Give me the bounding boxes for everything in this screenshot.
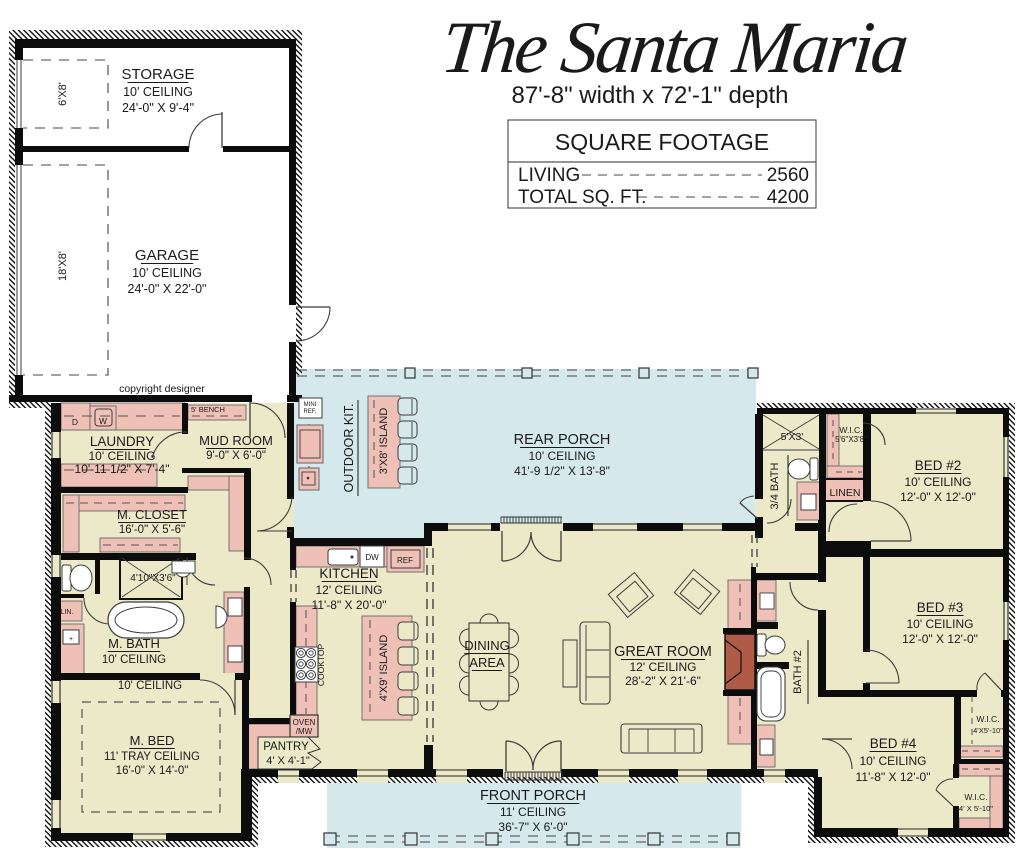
svg-text:LAUNDRY: LAUNDRY [90,434,154,449]
svg-text:DINING: DINING [464,638,510,653]
svg-text:W: W [99,416,107,426]
svg-text:10' CEILING: 10' CEILING [905,475,972,489]
svg-text:2560: 2560 [767,165,809,186]
svg-text:11'-8" X 12'-0": 11'-8" X 12'-0" [856,770,931,784]
svg-text:5'6"X3'8": 5'6"X3'8" [835,435,867,444]
svg-text:24'-0" X 9'-4": 24'-0" X 9'-4" [122,101,194,115]
svg-text:COOKTOP: COOKTOP [316,643,326,686]
svg-text:41'-9 1/2" X 13'-8": 41'-9 1/2" X 13'-8" [514,464,610,478]
svg-text:LINEN: LINEN [830,487,861,499]
svg-text:10' CEILING: 10' CEILING [118,680,182,692]
svg-text:10' CEILING: 10' CEILING [907,617,974,631]
svg-text:REF: REF [397,556,413,565]
svg-text:BED #2: BED #2 [915,458,962,473]
svg-text:11' TRAY CEILING: 11' TRAY CEILING [104,751,200,763]
svg-text:10' CEILING: 10' CEILING [860,754,927,768]
svg-text:GREAT ROOM: GREAT ROOM [614,644,712,660]
svg-text:10' CEILING: 10' CEILING [102,654,166,666]
svg-text:5' BENCH: 5' BENCH [191,405,225,414]
svg-text:GARAGE: GARAGE [135,247,199,264]
svg-text:10' CEILING: 10' CEILING [123,85,193,99]
svg-text:AREA: AREA [469,655,505,670]
svg-text:copyright designer: copyright designer [119,383,205,395]
svg-text:W.I.C.: W.I.C. [964,792,987,802]
svg-text:3'X8' ISLAND: 3'X8' ISLAND [378,408,390,475]
svg-text:24'-0" X 22'-0": 24'-0" X 22'-0" [128,282,207,296]
svg-text:KITCHEN: KITCHEN [319,566,378,581]
svg-text:+: + [69,636,73,643]
svg-text:LIN.: LIN. [61,609,74,616]
svg-text:10' CEILING: 10' CEILING [132,266,202,280]
svg-text:28'-2" X 21'-6": 28'-2" X 21'-6" [625,674,701,688]
svg-text:LIVING: LIVING [518,165,580,186]
svg-text:REAR PORCH: REAR PORCH [514,432,611,448]
svg-text:/MW: /MW [296,727,313,736]
svg-text:BED #3: BED #3 [917,600,964,615]
svg-text:W.I.C.: W.I.C. [839,425,862,435]
svg-text:4'X9' ISLAND: 4'X9' ISLAND [378,635,390,702]
svg-text:OUTDOOR KIT.: OUTDOOR KIT. [342,404,356,493]
svg-text:4'X5'-10": 4'X5'-10" [973,726,1003,735]
svg-text:16'-0" X 5'-6": 16'-0" X 5'-6" [119,524,185,536]
svg-text:10' CEILING: 10' CEILING [529,449,596,463]
svg-text:The Santa Maria: The Santa Maria [438,7,911,89]
svg-text:D: D [72,417,78,427]
svg-text:BED #4: BED #4 [870,736,917,751]
svg-text:M. CLOSET: M. CLOSET [117,507,187,522]
svg-text:MINI: MINI [304,402,317,408]
svg-text:18'X8': 18'X8' [57,251,69,281]
svg-text:12'-0" X 12'-0": 12'-0" X 12'-0" [902,632,978,646]
svg-text:4'10"X3'6": 4'10"X3'6" [130,573,176,584]
svg-text:6'X8': 6'X8' [57,82,69,106]
svg-text:12' CEILING: 12' CEILING [630,660,697,674]
svg-text:11' CEILING: 11' CEILING [500,805,566,819]
svg-text:STORAGE: STORAGE [121,66,194,83]
svg-text:16'-0" X 14'-0": 16'-0" X 14'-0" [116,765,189,777]
svg-text:11'-8" X 20'-0": 11'-8" X 20'-0" [312,598,387,612]
svg-text:4200: 4200 [767,187,809,208]
svg-text:W.I.C.: W.I.C. [976,714,999,724]
svg-text:MUD ROOM: MUD ROOM [199,433,273,448]
svg-text:REF.: REF. [303,409,316,415]
svg-text:TOTAL SQ. FT.: TOTAL SQ. FT. [518,187,646,208]
svg-text:PANTRY: PANTRY [263,741,309,753]
svg-text:12'-0" X 12'-0": 12'-0" X 12'-0" [900,490,976,504]
svg-text:10' CEILING: 10' CEILING [89,449,156,463]
svg-text:4' X 4'-1": 4' X 4'-1" [266,755,310,767]
svg-text:SQUARE FOOTAGE: SQUARE FOOTAGE [555,129,769,155]
svg-text:M. BED: M. BED [130,733,175,748]
svg-text:10'-11 1/2" X 7'-4": 10'-11 1/2" X 7'-4" [75,462,170,476]
svg-text:BATH #2: BATH #2 [792,650,804,694]
svg-text:OVEN: OVEN [293,718,316,727]
svg-text:36'-7" X 6'-0": 36'-7" X 6'-0" [498,820,567,834]
svg-text:FRONT PORCH: FRONT PORCH [480,788,586,804]
svg-text:3/4 BATH: 3/4 BATH [769,463,781,510]
svg-text:12' CEILING: 12' CEILING [316,583,383,597]
svg-text:4' X 5'-10": 4' X 5'-10" [959,804,993,813]
svg-text:9'-0" X 6'-0": 9'-0" X 6'-0" [206,450,266,462]
svg-text:5'X3': 5'X3' [781,431,804,443]
svg-text:87'-8" width x 72'-1" depth: 87'-8" width x 72'-1" depth [511,82,788,109]
svg-text:DW: DW [365,553,379,562]
svg-text:M. BATH: M. BATH [108,636,160,651]
